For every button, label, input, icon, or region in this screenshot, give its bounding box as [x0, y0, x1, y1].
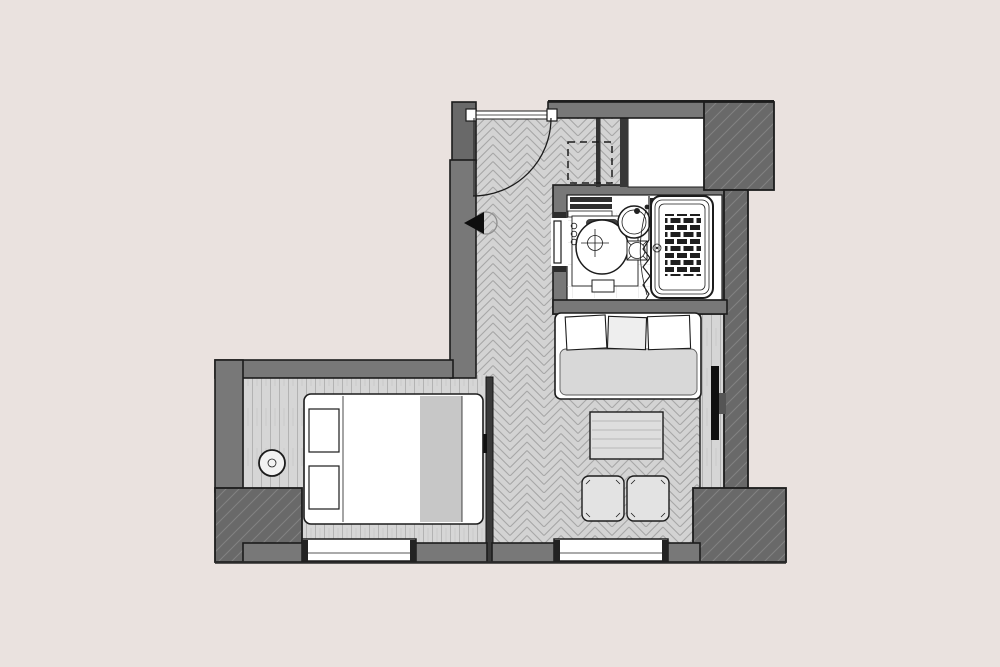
right-wall: [724, 190, 748, 492]
bedroom-window: [302, 539, 416, 561]
pillow: [309, 409, 339, 452]
stool[interactable]: [582, 476, 624, 521]
sofa-seat: [560, 349, 697, 395]
bed-runner: [420, 396, 462, 522]
double-bed[interactable]: [304, 394, 483, 524]
door-hinge-right: [547, 109, 557, 121]
floor-plan-canvas: Studio hotel room floor plan: [0, 0, 1000, 667]
top-right-column: [704, 102, 774, 190]
shower[interactable]: [640, 196, 713, 299]
bedroom-top-wall: [215, 360, 453, 378]
hall-left-wall: [450, 160, 476, 378]
bottom-right-column: [693, 488, 786, 562]
pillow: [309, 466, 339, 509]
sofa-pillow: [607, 316, 646, 349]
closet-niche-floor: [628, 112, 704, 187]
sofa-pillow: [565, 315, 607, 350]
top-wall: [548, 102, 710, 118]
round-side-table[interactable]: [259, 450, 285, 476]
daybed-sofa[interactable]: [555, 313, 701, 399]
floor-plan: Studio hotel room floor plan: [0, 0, 1000, 667]
towel-shelf: [568, 197, 612, 217]
sofa-pillow: [647, 315, 690, 349]
stool[interactable]: [627, 476, 669, 521]
shower-mosaic-tray: [665, 214, 701, 276]
living-window: [554, 539, 668, 561]
ottoman-table[interactable]: [590, 412, 663, 459]
bathroom: [551, 185, 727, 314]
bathroom-pocket-door[interactable]: [551, 212, 568, 272]
bathroom-bottom-wall: [553, 300, 727, 314]
closet-partition: [596, 108, 601, 187]
bedroom-left-wall: [215, 360, 243, 492]
